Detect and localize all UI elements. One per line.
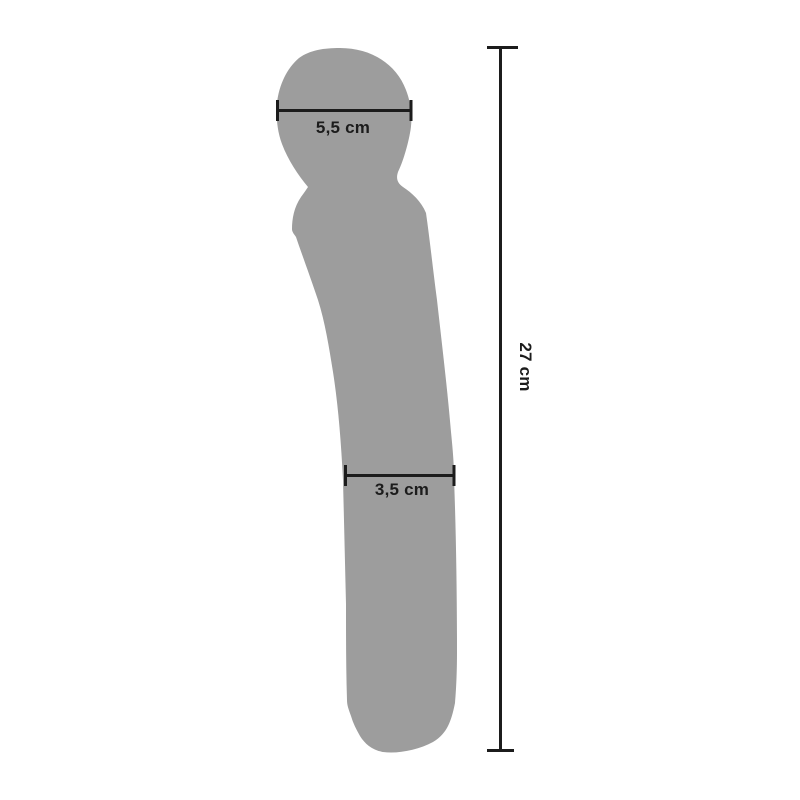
- total-length-dimension: [487, 47, 518, 751]
- product-dimension-diagram: 5,5 cm 3,5 cm 27 cm: [0, 0, 800, 800]
- head-width-label: 5,5 cm: [316, 118, 370, 138]
- diagram-canvas: [0, 0, 800, 800]
- product-silhouette: [277, 48, 457, 753]
- total-length-label: 27 cm: [515, 342, 535, 391]
- shaft-width-label: 3,5 cm: [375, 480, 429, 500]
